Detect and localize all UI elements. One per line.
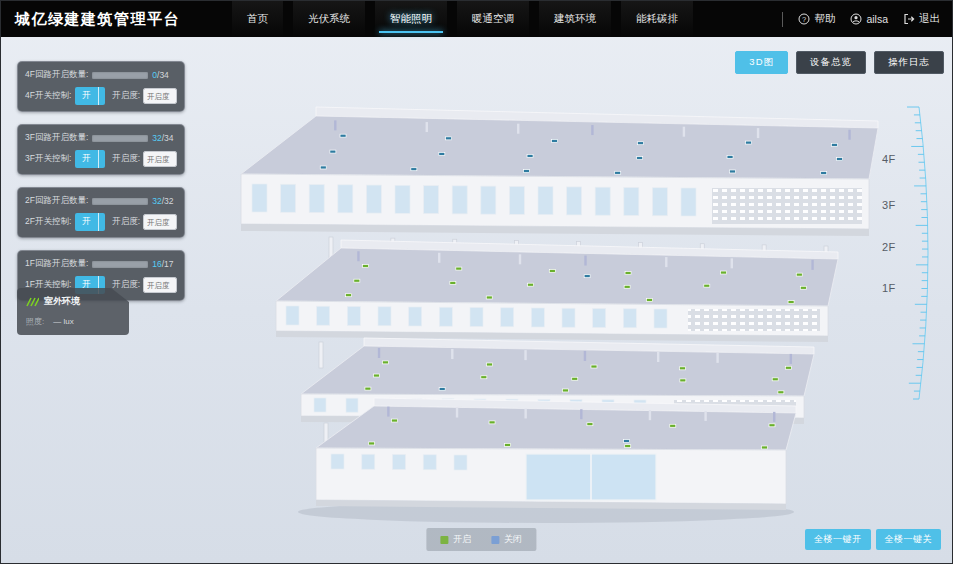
circuit-count-value: 0/34 <box>152 70 169 80</box>
app-window: 城亿绿建建筑管理平台 首页 光伏系统 智能照明 暖通空调 建筑环境 能耗碳排 ?… <box>0 0 953 564</box>
circuit-count-label: 1F回路开启数量: <box>25 258 88 270</box>
all-on-button[interactable]: 全楼一键开 <box>805 529 871 550</box>
building-floor-3f[interactable] <box>276 237 838 342</box>
circuit-progress-bar <box>92 261 148 268</box>
legend-off-swatch <box>491 536 499 544</box>
switch-control-label: 2F开关控制: <box>25 216 71 228</box>
floor-scale-label-3f[interactable]: 3F <box>882 199 896 211</box>
dim-label: 开启度: <box>112 216 140 228</box>
all-off-button[interactable]: 全楼一键关 <box>876 529 942 550</box>
logout-icon <box>903 13 915 25</box>
circuit-count-value: 32/34 <box>152 133 173 143</box>
dim-label: 开启度: <box>112 90 140 102</box>
nav-item-pv-system[interactable]: 光伏系统 <box>293 1 365 37</box>
circuit-progress-bar <box>92 198 148 205</box>
nav-item-smart-lighting[interactable]: 智能照明 <box>375 1 447 37</box>
dim-label: 开启度: <box>112 153 140 165</box>
dim-label: 开启度: <box>112 279 140 291</box>
circuit-progress-bar <box>92 135 148 142</box>
nav-item-building-env[interactable]: 建筑环境 <box>539 1 611 37</box>
switch-group: 开关 <box>75 213 105 231</box>
user-button[interactable]: ailsa <box>850 13 888 25</box>
dim-input-group: % <box>143 88 177 104</box>
legend-off-label: 关闭 <box>504 533 522 546</box>
nav-item-energy-carbon[interactable]: 能耗碳排 <box>621 1 693 37</box>
logout-button[interactable]: 退出 <box>903 12 940 26</box>
nav-item-home[interactable]: 首页 <box>232 1 283 37</box>
dim-input-group: % <box>143 277 177 293</box>
env-panel-title: 室外环境 <box>44 295 80 308</box>
app-title: 城亿绿建建筑管理平台 <box>15 10 180 29</box>
legend-on-label: 开启 <box>453 533 471 546</box>
switch-on-button[interactable]: 开 <box>75 87 98 105</box>
logout-label: 退出 <box>919 12 940 26</box>
floor-zoom-ruler[interactable] <box>903 103 947 403</box>
switch-off-button[interactable]: 关 <box>98 87 105 105</box>
circuit-count-value: 32/32 <box>152 196 173 206</box>
legend-item-off: 关闭 <box>491 533 522 546</box>
circuit-count-label: 3F回路开启数量: <box>25 132 88 144</box>
svg-text:?: ? <box>802 15 806 24</box>
floor-panel-3f: 3F回路开启数量: 32/34 3F开关控制: 开关 开启度: % <box>17 124 185 175</box>
nav-item-hvac[interactable]: 暖通空调 <box>457 1 529 37</box>
switch-on-button[interactable]: 开 <box>75 150 98 168</box>
nav-item-label: 能耗碳排 <box>636 12 678 26</box>
outdoor-env-panel: 室外环境 照度: — lux <box>17 288 129 335</box>
circuit-progress-bar <box>92 72 148 79</box>
help-label: 帮助 <box>814 12 835 26</box>
nav-item-label: 首页 <box>247 12 268 26</box>
circuit-count-value: 16/17 <box>152 259 173 269</box>
floor-scale-label-1f[interactable]: 1F <box>882 282 896 294</box>
status-legend: 开启 关闭 <box>426 528 536 551</box>
nav-item-label: 暖通空调 <box>472 12 514 26</box>
view-toolbar: 3D图 设备总览 操作日志 <box>735 51 944 74</box>
dim-input[interactable] <box>144 278 177 292</box>
nav-item-label: 智能照明 <box>390 12 432 26</box>
nav-right-area: ? 帮助 ailsa 退出 <box>782 12 940 27</box>
circuit-count-label: 2F回路开启数量: <box>25 195 88 207</box>
legend-item-on: 开启 <box>440 533 471 546</box>
help-button[interactable]: ? 帮助 <box>798 12 835 26</box>
main-menu: 首页 光伏系统 智能照明 暖通空调 建筑环境 能耗碳排 <box>232 1 693 37</box>
legend-on-swatch <box>440 536 448 544</box>
dim-input[interactable] <box>144 152 177 166</box>
switch-group: 开关 <box>75 150 105 168</box>
top-nav: 城亿绿建建筑管理平台 首页 光伏系统 智能照明 暖通空调 建筑环境 能耗碳排 ?… <box>1 1 952 37</box>
switch-off-button[interactable]: 关 <box>98 150 105 168</box>
switch-group: 开关 <box>75 87 105 105</box>
building-3d-model[interactable] <box>226 96 906 526</box>
dim-input[interactable] <box>144 215 177 229</box>
circuit-count-label: 4F回路开启数量: <box>25 69 88 81</box>
operation-log-button[interactable]: 操作日志 <box>874 51 944 74</box>
bulk-actions: 全楼一键开 全楼一键关 <box>805 529 941 550</box>
leaf-slashes-icon <box>26 297 39 307</box>
switch-on-button[interactable]: 开 <box>75 213 98 231</box>
user-icon <box>850 13 862 25</box>
building-floor-4f[interactable] <box>241 107 878 236</box>
floor-scale-label-2f[interactable]: 2F <box>882 241 896 253</box>
nav-item-label: 建筑环境 <box>554 12 596 26</box>
nav-item-label: 光伏系统 <box>308 12 350 26</box>
floor-control-panels: 4F回路开启数量: 0/34 4F开关控制: 开关 开启度: % 3F回路开启数… <box>17 61 185 313</box>
illuminance-label: 照度: <box>26 316 44 327</box>
floor-panel-2f: 2F回路开启数量: 32/32 2F开关控制: 开关 开启度: % <box>17 187 185 238</box>
help-icon: ? <box>798 13 810 25</box>
nav-divider <box>782 12 783 27</box>
dim-input[interactable] <box>144 89 177 103</box>
device-overview-button[interactable]: 设备总览 <box>796 51 866 74</box>
switch-control-label: 3F开关控制: <box>25 153 71 165</box>
floor-scale-label-4f[interactable]: 4F <box>882 153 896 165</box>
username-label: ailsa <box>866 13 888 25</box>
building-floor-1f[interactable] <box>316 398 796 510</box>
dim-input-group: % <box>143 214 177 230</box>
dim-input-group: % <box>143 151 177 167</box>
view-3d-button[interactable]: 3D图 <box>735 51 788 74</box>
floor-panel-4f: 4F回路开启数量: 0/34 4F开关控制: 开关 开启度: % <box>17 61 185 112</box>
switch-off-button[interactable]: 关 <box>98 213 105 231</box>
illuminance-value: — lux <box>53 317 73 326</box>
switch-control-label: 4F开关控制: <box>25 90 71 102</box>
